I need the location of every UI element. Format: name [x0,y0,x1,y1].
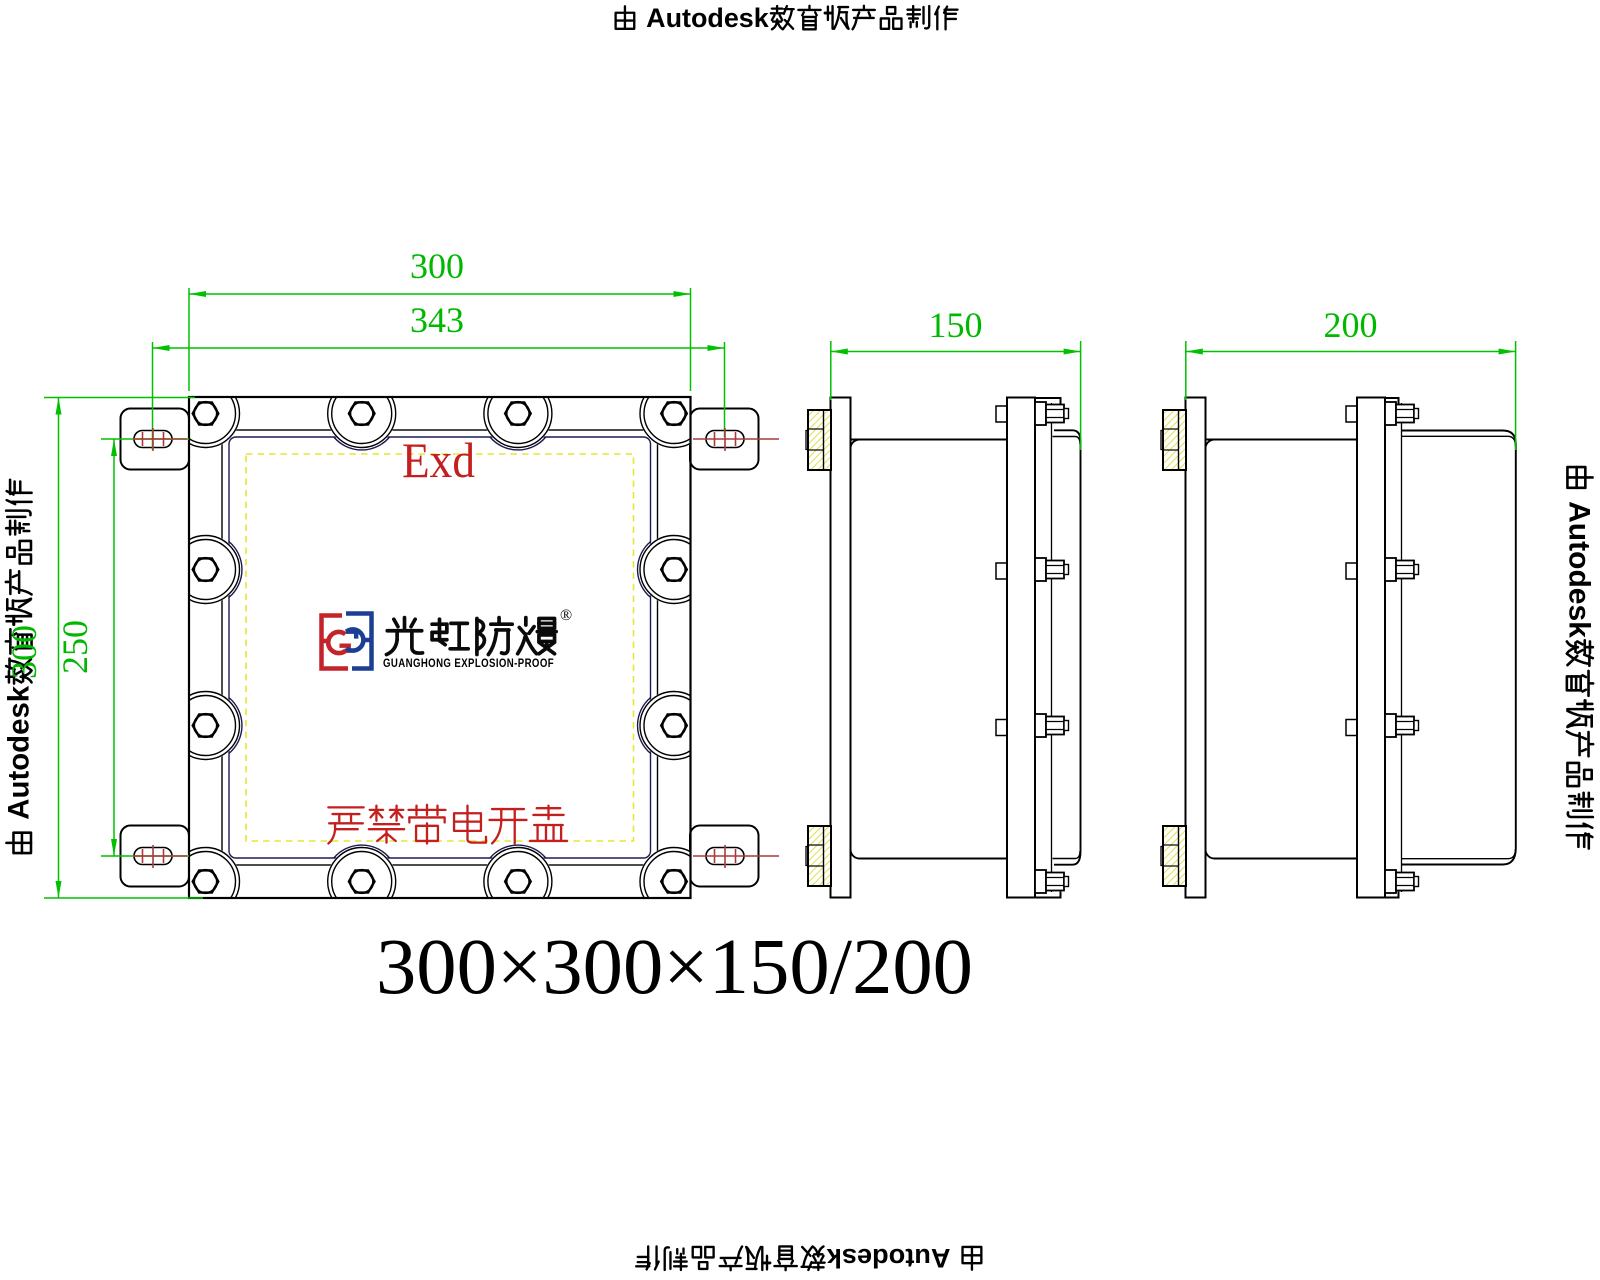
svg-text:Autodesk: Autodesk [3,685,36,820]
svg-text:300×300×150/200: 300×300×150/200 [376,924,973,1011]
svg-text:250: 250 [55,620,95,674]
svg-text:200: 200 [1324,305,1378,345]
svg-text:150: 150 [929,305,983,345]
svg-text:343: 343 [410,300,464,340]
svg-text:Exd: Exd [402,432,475,488]
svg-text:®: ® [560,607,572,624]
svg-text:GUANGHONG EXPLOSION-PROOF: GUANGHONG EXPLOSION-PROOF [383,656,554,670]
svg-text:Autodesk: Autodesk [646,3,769,33]
svg-text:Autodesk: Autodesk [826,1243,951,1274]
svg-text:300: 300 [4,625,44,679]
svg-text:300: 300 [410,246,464,286]
svg-text:Autodesk: Autodesk [1563,501,1596,638]
